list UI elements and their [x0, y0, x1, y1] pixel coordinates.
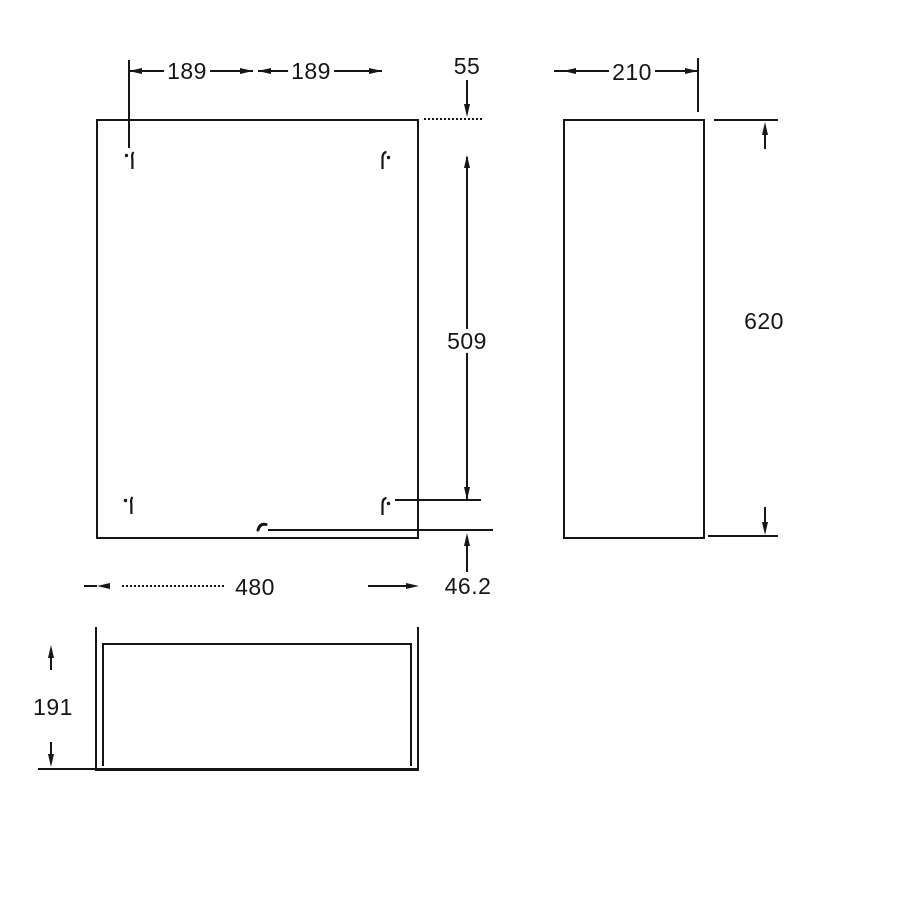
bottom-view-outer-left-wall [95, 627, 97, 771]
dim-tail-55 [466, 80, 468, 106]
extension-line-210-right [697, 58, 699, 112]
lip-line-end-tick [256, 521, 268, 532]
extension-line-191-bottom [38, 768, 96, 770]
dim-arrow-189-right-start [258, 68, 271, 74]
extension-line-620-top [714, 119, 778, 121]
dim-arrow-189-left-start [129, 68, 142, 74]
dim-arrow-480-right [406, 583, 419, 589]
dim-tail-480-right [368, 585, 406, 587]
dim-arrow-189-right-end [369, 68, 382, 74]
dim-label-bottom-depth: 191 [30, 695, 76, 719]
mounting-hole-mark-top-left [123, 149, 139, 173]
dim-label-height: 620 [741, 309, 787, 333]
mounting-hole-mark-bottom-left [122, 494, 138, 518]
dim-arrow-191-down [48, 754, 54, 767]
dim-line-480-dotted [122, 585, 224, 587]
dim-arrow-55-down [464, 104, 470, 117]
dim-label-hole-spacing-right: 189 [288, 59, 334, 83]
dim-tail-620-top [764, 134, 766, 149]
bottom-view-inner-left-wall [102, 643, 104, 766]
extension-line-620-bottom [708, 535, 778, 537]
dim-label-depth: 210 [609, 60, 655, 84]
dim-label-hole-spacing-left: 189 [164, 59, 210, 83]
dim-label-hole-vertical-span: 509 [444, 329, 490, 353]
dim-arrow-189-left-end [240, 68, 253, 74]
front-view-bottom-lip-line [268, 529, 493, 531]
side-view-outline [563, 119, 705, 539]
dim-tail-462 [466, 545, 468, 572]
dim-tail-191-top [50, 657, 52, 670]
mounting-hole-mark-top-right [376, 149, 392, 173]
dim-label-top-offset: 55 [451, 54, 484, 78]
dim-tail-620-bottom [764, 507, 766, 522]
extension-line-top-edge-dotted [424, 118, 482, 120]
dim-arrow-480-left [97, 583, 110, 589]
bottom-view-top-edge [102, 643, 412, 645]
dimension-drawing-canvas: 189 189 55 509 46.2 480 210 620 191 [0, 0, 922, 922]
front-view-outline [96, 119, 419, 539]
extension-line-hole-row-bottom [395, 499, 481, 501]
bottom-view-inner-right-wall [410, 643, 412, 766]
dim-label-bottom-offset: 46.2 [442, 574, 495, 598]
dim-overshoot-480-left [84, 585, 97, 587]
bottom-view-bottom-edge [95, 768, 419, 771]
dim-arrow-620-down [762, 522, 768, 535]
dim-arrow-210-left [563, 68, 576, 74]
dim-label-width: 480 [232, 575, 278, 599]
mounting-hole-mark-bottom-right [376, 495, 392, 519]
bottom-view-outer-right-wall [417, 627, 419, 771]
